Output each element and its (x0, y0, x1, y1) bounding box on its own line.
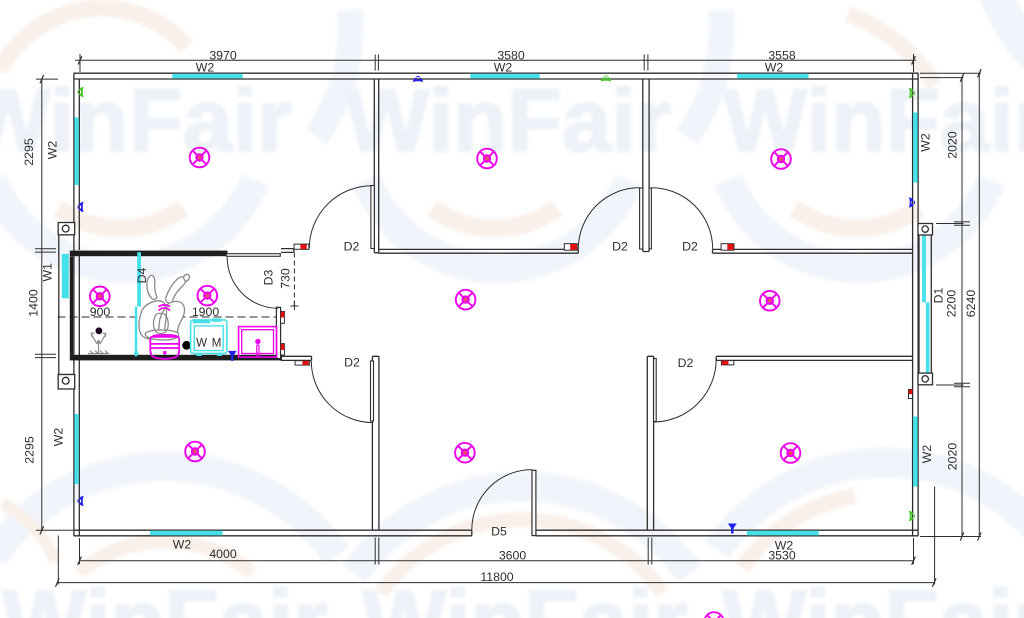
svg-text:W2: W2 (173, 538, 192, 552)
svg-text:W: W (196, 338, 207, 350)
svg-text:2020: 2020 (946, 131, 960, 159)
svg-text:D2: D2 (678, 356, 694, 370)
svg-text:2295: 2295 (22, 138, 36, 166)
svg-text:1400: 1400 (27, 289, 41, 317)
svg-text:W2: W2 (52, 428, 66, 447)
svg-text:2200: 2200 (945, 290, 959, 318)
svg-text:900: 900 (90, 305, 111, 319)
svg-text:W2: W2 (775, 539, 794, 553)
svg-text:W2: W2 (920, 445, 934, 464)
svg-text:W1: W1 (40, 263, 54, 282)
svg-text:WinFair: WinFair (2, 571, 328, 618)
svg-text:WinFair: WinFair (722, 571, 1024, 618)
svg-text:D1: D1 (932, 287, 946, 303)
svg-text:M: M (212, 338, 222, 350)
svg-text:D5: D5 (491, 525, 507, 539)
svg-text:4000: 4000 (209, 547, 237, 561)
svg-text:W2: W2 (919, 133, 933, 152)
svg-text:730: 730 (279, 268, 293, 289)
svg-text:W2: W2 (494, 61, 513, 75)
svg-text:D2: D2 (612, 240, 628, 254)
svg-text:2020: 2020 (946, 443, 960, 471)
svg-text:11800: 11800 (480, 570, 513, 584)
svg-text:3600: 3600 (499, 549, 527, 563)
svg-text:6240: 6240 (964, 290, 978, 318)
svg-text:1900: 1900 (192, 305, 220, 319)
svg-text:W2: W2 (196, 61, 215, 75)
svg-text:D2: D2 (344, 356, 360, 370)
svg-text:D4: D4 (135, 267, 149, 283)
svg-text:D2: D2 (682, 240, 698, 254)
svg-text:WinFair: WinFair (345, 70, 671, 170)
svg-text:W2: W2 (765, 61, 784, 75)
svg-text:2295: 2295 (23, 436, 37, 464)
svg-text:WinFair: WinFair (0, 70, 292, 170)
svg-text:D2: D2 (344, 240, 360, 254)
svg-text:D3: D3 (262, 269, 276, 285)
svg-text:W2: W2 (46, 141, 60, 160)
svg-text:WinFair: WinFair (362, 571, 688, 618)
